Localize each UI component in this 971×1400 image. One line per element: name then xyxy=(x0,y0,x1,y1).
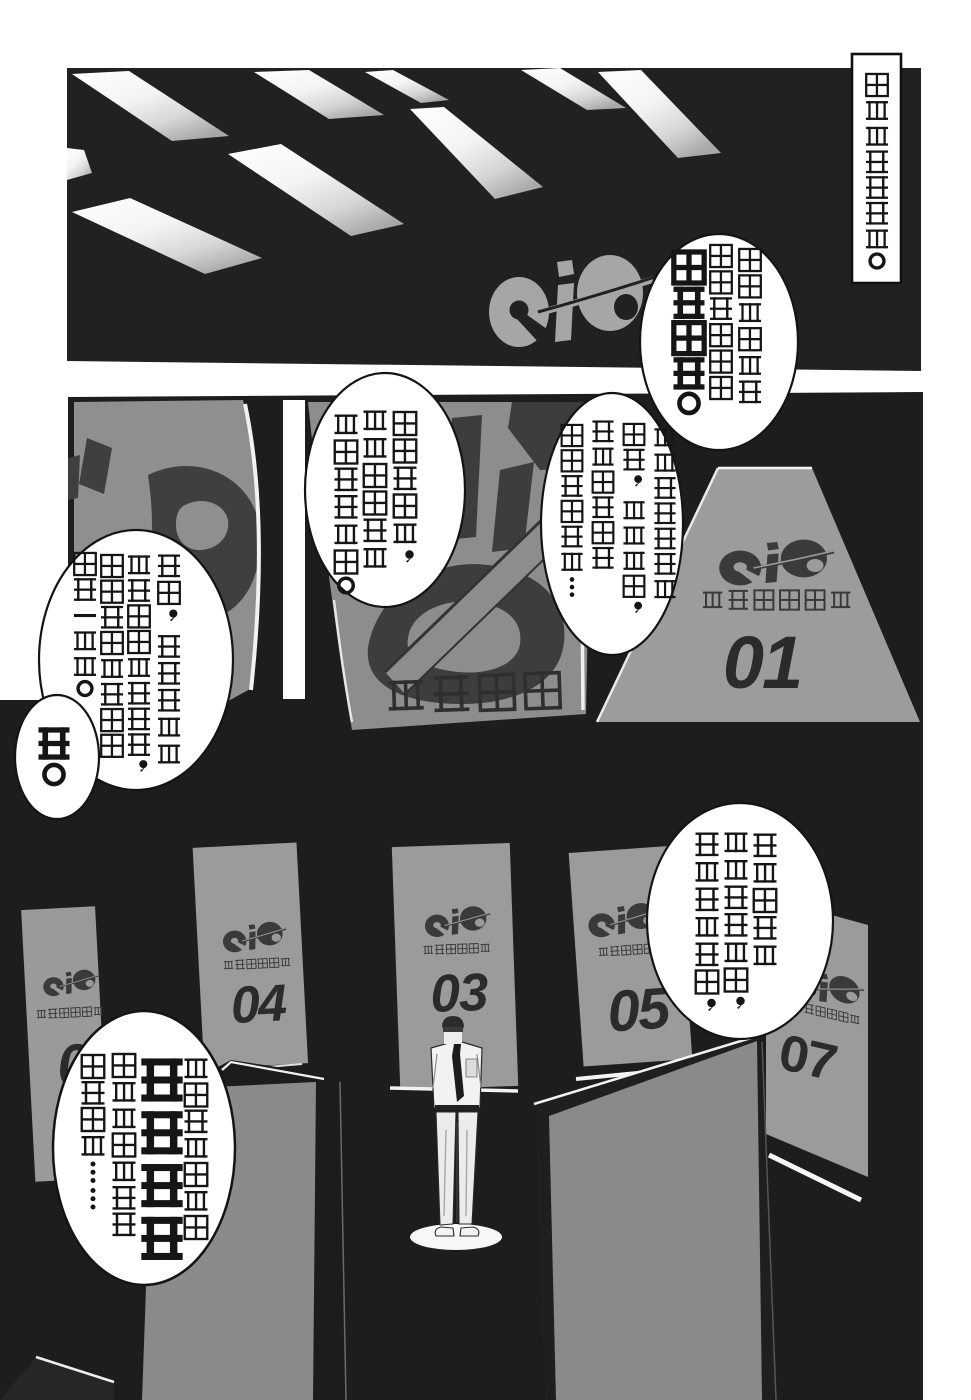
svg-text:01: 01 xyxy=(723,621,801,704)
svg-text:03: 03 xyxy=(429,963,489,1024)
svg-text:04: 04 xyxy=(230,974,289,1035)
